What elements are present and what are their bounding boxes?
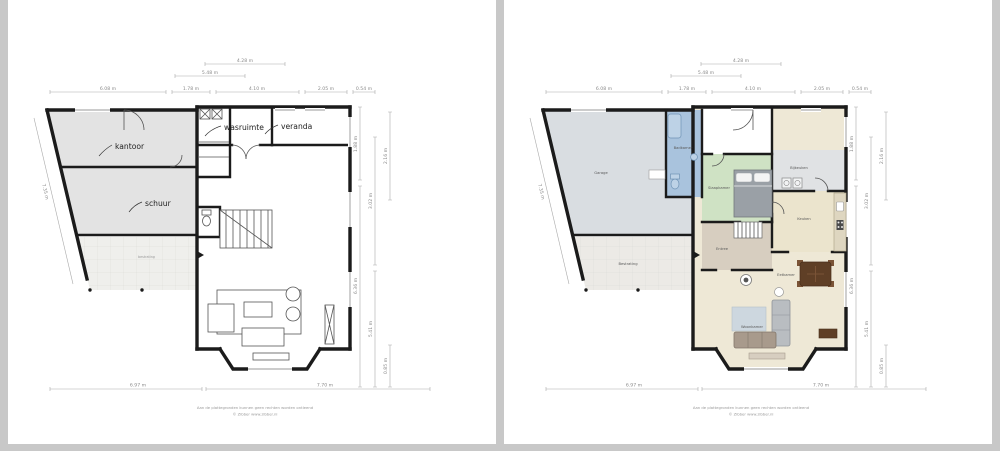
bed-icon bbox=[734, 170, 772, 217]
side-table-icon bbox=[775, 288, 784, 297]
sofa-icon bbox=[734, 332, 776, 348]
floorplan-colored-drawing: Garage Bestrating Badkamer Slaapkamer Bi… bbox=[516, 52, 986, 424]
room-label-woonkamer: Woonkamer bbox=[741, 325, 763, 329]
bay-bench-icon bbox=[749, 353, 785, 359]
floorplan-outline-drawing: kantoor wasruimte veranda schuur bestrat… bbox=[20, 52, 490, 424]
room-label-eetkamer: Eetkamer bbox=[777, 273, 795, 277]
dim-top-width: 4.28 m bbox=[237, 58, 254, 64]
dim-label: 1.78 m bbox=[679, 86, 696, 92]
room-label-schuur: schuur bbox=[145, 199, 172, 208]
side-table-icon bbox=[286, 307, 300, 321]
room-label-slaapkamer: Slaapkamer bbox=[708, 186, 730, 190]
sink-icon bbox=[691, 154, 698, 161]
disclaimer-text: Aan de plattegronden kunnen geen rechten… bbox=[197, 405, 314, 410]
dim-label: 4.10 m bbox=[745, 86, 762, 92]
dim-label: 1.78 m bbox=[183, 86, 200, 92]
pillow-icon bbox=[754, 173, 770, 182]
bathtub-icon bbox=[668, 114, 681, 138]
credit-text: © Zibber www.zibber.nl bbox=[233, 412, 278, 417]
disclaimer-text: Aan de plattegronden kunnen geen rechten… bbox=[693, 405, 810, 410]
room-label-bestrating: Bestrating bbox=[618, 262, 637, 266]
dim-left-diagonal: 7.35 m bbox=[40, 183, 50, 201]
pillow-icon bbox=[736, 173, 752, 182]
credit-text: © Zibber www.zibber.nl bbox=[729, 412, 774, 417]
dim-label: 2.05 m bbox=[318, 86, 335, 92]
room-label-bijkeuken: Bijkeuken bbox=[790, 166, 808, 170]
dim-label: 2.16 m bbox=[383, 147, 389, 164]
living-room-furniture bbox=[208, 287, 334, 360]
dim-label: 0.85 m bbox=[879, 357, 885, 374]
workbench-icon bbox=[649, 170, 665, 179]
sofa-icon bbox=[208, 304, 234, 332]
impressie-page: Impressie bbox=[0, 0, 1000, 451]
bay-bench-icon bbox=[253, 353, 289, 360]
dim-label: 4.28 m bbox=[733, 58, 750, 64]
dim-label: 3.02 m bbox=[864, 192, 870, 209]
dim-label: 7.35 m bbox=[536, 183, 546, 201]
direction-arrow-icon bbox=[197, 251, 204, 259]
kitchen-counter bbox=[834, 193, 846, 251]
dim-label: 7.70 m bbox=[813, 383, 830, 389]
toilet-icon bbox=[202, 210, 211, 226]
dim-label: 6.08 m bbox=[100, 86, 117, 92]
room-label-kantoor: kantoor bbox=[115, 142, 145, 151]
dim-label: 2.16 m bbox=[879, 147, 885, 164]
dim-label: 6.08 m bbox=[596, 86, 613, 92]
dim-bottom-right: 7.70 m bbox=[317, 383, 334, 389]
toilet-icon bbox=[671, 179, 679, 189]
dim-label: 4.10 m bbox=[249, 86, 266, 92]
dim-label: 0.85 m bbox=[383, 357, 389, 374]
dim-label: 5.41 m bbox=[368, 320, 374, 337]
dim-label: 3.02 m bbox=[368, 192, 374, 209]
sideboard-icon bbox=[819, 329, 837, 338]
dim-bottom-left: 6.97 m bbox=[130, 383, 147, 389]
room-label-garage: Garage bbox=[594, 171, 608, 175]
floorplan-panel-outline: kantoor wasruimte veranda schuur bestrat… bbox=[8, 0, 496, 444]
room-label-badkamer: Badkamer bbox=[674, 146, 693, 150]
room-label-wasruimte: wasruimte bbox=[224, 123, 264, 132]
dim-label: 0.54 m bbox=[356, 86, 373, 92]
terrace-area bbox=[77, 237, 197, 290]
dim-label: 2.05 m bbox=[814, 86, 831, 92]
dim-top-inner: 5.48 m bbox=[202, 70, 219, 76]
dim-label: 6.36 m bbox=[353, 277, 359, 294]
dining-table-icon bbox=[797, 260, 834, 287]
dim-label: 5.48 m bbox=[698, 70, 715, 76]
dim-label: 6.97 m bbox=[626, 383, 643, 389]
room-label-veranda: veranda bbox=[281, 122, 312, 131]
room-label-keuken: Keuken bbox=[797, 217, 811, 221]
dim-label: 6.36 m bbox=[849, 277, 855, 294]
closet-icon bbox=[199, 109, 229, 157]
side-table-icon bbox=[286, 287, 300, 301]
room-label-bestrating: bestrating bbox=[138, 255, 155, 259]
stove-icon bbox=[837, 220, 844, 230]
dim-label: 1.88 m bbox=[849, 135, 855, 152]
hall-area bbox=[702, 107, 772, 154]
sofa-icon bbox=[242, 328, 284, 346]
room-label-entree: Entree bbox=[716, 247, 729, 251]
fireplace-icon bbox=[741, 275, 752, 286]
sink-icon bbox=[837, 202, 844, 211]
coffee-table-icon bbox=[244, 302, 272, 317]
floorplan-panel-colored: Garage Bestrating Badkamer Slaapkamer Bi… bbox=[504, 0, 992, 444]
dim-label: 5.41 m bbox=[864, 320, 870, 337]
dim-label: 1.88 m bbox=[353, 135, 359, 152]
dim-label: 0.54 m bbox=[852, 86, 869, 92]
